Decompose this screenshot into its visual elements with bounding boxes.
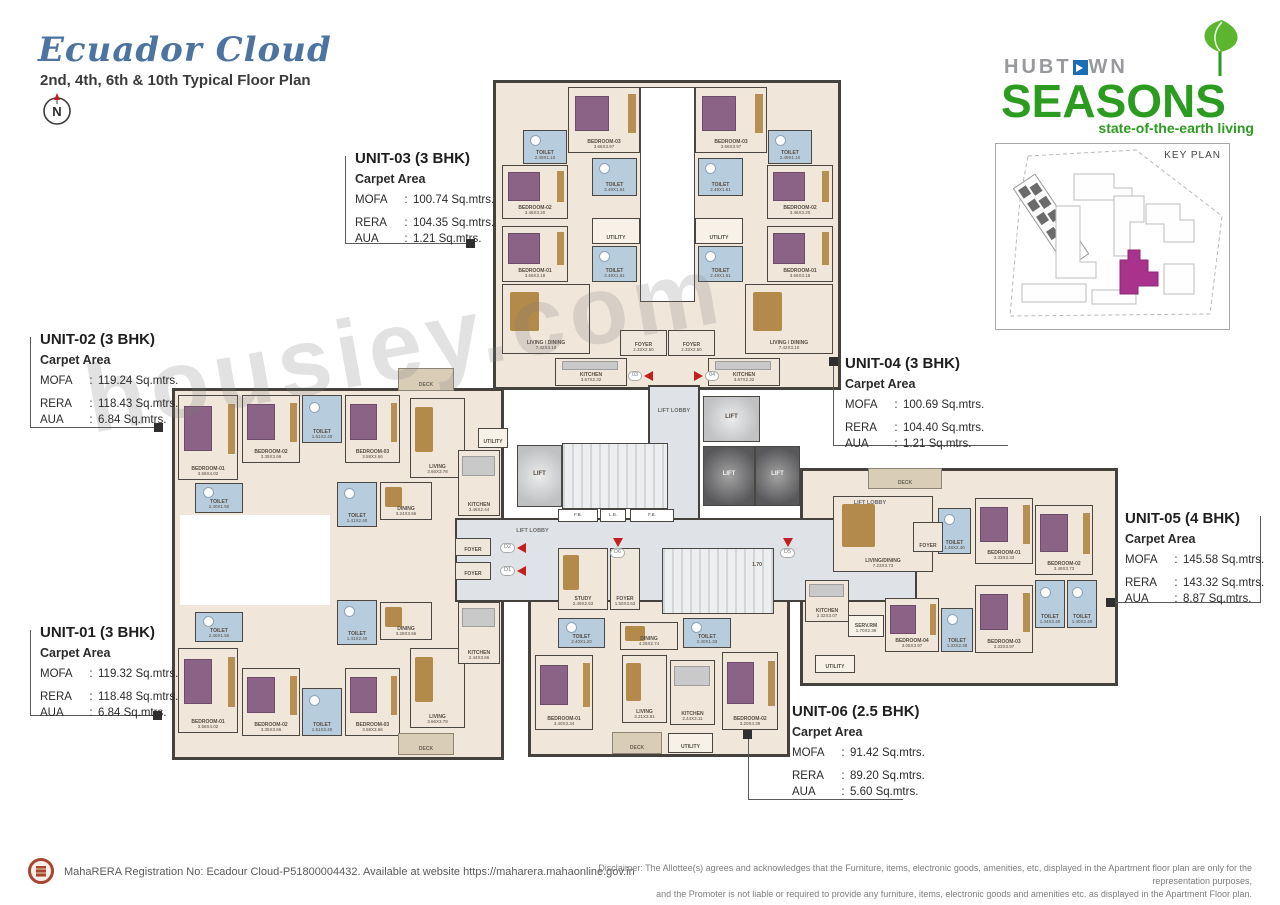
unit-04-carpet-area-heading: Carpet Area: [845, 377, 984, 391]
area-key: RERA: [40, 396, 84, 413]
room-dimensions: 2.49X1.61: [604, 274, 625, 279]
door-arrow-icon: [783, 538, 793, 547]
colon: :: [84, 689, 98, 706]
room-toilet: TOILET1.41X2.40: [337, 600, 377, 645]
unit-06-rera-row: RERA:89.20 Sq.mtrs.: [792, 768, 925, 785]
room-dining: DINING4.25X2.74: [620, 622, 678, 650]
colon: :: [84, 412, 98, 429]
door-marker-03: 03: [628, 371, 653, 381]
room-bedroom-02: BEDROOM-023.46X3.20: [767, 165, 833, 219]
area-key: RERA: [1125, 575, 1169, 592]
unit-06-carpet-area-heading: Carpet Area: [792, 725, 925, 739]
room-dimensions: 4.25X2.74: [639, 642, 660, 647]
room-shaft: [640, 87, 695, 302]
room-dimensions: 1.51X2.40: [312, 728, 333, 733]
room-label: LIFT LOBBY: [658, 408, 690, 415]
room-living: LIVING3.66X3.78: [410, 648, 465, 728]
room-bedroom-02: BEDROOM-023.20X4.39: [722, 652, 778, 730]
door-label: D6: [610, 548, 625, 558]
room-label: F.B.: [648, 512, 656, 517]
colon: :: [889, 420, 903, 437]
room-foyer: FOYER2.32X2.50: [620, 330, 667, 356]
room-dimensions: 3.33X3.33: [994, 556, 1015, 561]
room-living-dining: LIVING / DINING7.42X3.10: [502, 284, 590, 354]
door-label: D1: [500, 566, 515, 576]
area-value: 91.42 Sq.mtrs.: [850, 745, 925, 762]
room-dimensions: 2.49X2.63: [573, 602, 594, 607]
area-key: RERA: [355, 215, 399, 232]
area-key: MOFA: [355, 192, 399, 209]
room-label: UTILITY: [826, 664, 845, 670]
area-key: MOFA: [40, 666, 84, 683]
door-marker-d6: D6: [610, 538, 625, 558]
unit-05-name: UNIT-05 (4 BHK): [1125, 510, 1264, 527]
area-value: 119.24 Sq.mtrs.: [98, 373, 178, 390]
room-f-b-: F.B.: [558, 509, 598, 522]
door-label: 03: [628, 371, 642, 381]
room-dimensions: 2.40X1.50: [209, 505, 230, 510]
room-dimensions: 2.40X1.50: [209, 634, 230, 639]
room-label: F.B.: [574, 512, 582, 517]
room-toilet: TOILET2.40X1.50: [195, 612, 243, 642]
room-deck: DECK: [868, 468, 942, 489]
room-dimensions: 7.42X3.10: [779, 346, 800, 351]
room-label: DECK: [419, 746, 433, 752]
door-marker-d1: D1: [500, 566, 526, 576]
unit-02-name: UNIT-02 (3 BHK): [40, 331, 178, 348]
door-label: 04: [705, 371, 719, 381]
unit-06-name: UNIT-06 (2.5 BHK): [792, 703, 925, 720]
door-marker-04: 04: [694, 371, 719, 381]
floor-plan: BEDROOM-033.66X3.97TOILET2.49X1.10BEDROO…: [0, 0, 1280, 905]
door-arrow-icon: [517, 543, 526, 553]
unit-06-label-box: UNIT-06 (2.5 BHK)Carpet AreaMOFA:91.42 S…: [792, 703, 925, 801]
plan-cut: [180, 515, 330, 605]
unit-02-rera-row: RERA:118.43 Sq.mtrs.: [40, 396, 178, 413]
room-dimensions: 3.21X3.81: [634, 715, 655, 720]
room-dimensions: 3.35X3.66: [261, 728, 282, 733]
room-dimensions: 2.44X3.11: [682, 717, 702, 722]
room-dimensions: 3.66X3.97: [721, 145, 742, 150]
room-dining: DINING3.24X3.66: [380, 482, 432, 520]
room-bedroom-03: BEDROOM-033.66X3.97: [568, 87, 640, 153]
room-living: LIVING3.21X3.81: [622, 655, 667, 723]
room-toilet: TOILET1.51X2.40: [302, 395, 342, 443]
room-utility: UTILITY: [668, 733, 713, 753]
area-value: 1.21 Sq.mtrs.: [413, 231, 481, 248]
room-dimensions: 3.46X3.20: [790, 211, 811, 216]
unit-06-aua-row: AUA:5.60 Sq.mtrs.: [792, 784, 925, 801]
room-dimensions: 3.67X2.32: [581, 378, 602, 383]
room-utility: UTILITY: [592, 218, 640, 244]
room-dimensions: 7.23X3.73: [873, 564, 894, 569]
room-toilet: TOILET1.33X2.38: [941, 608, 973, 652]
unit-03-mofa-row: MOFA:100.74 Sq.mtrs.: [355, 192, 494, 209]
room-foyer: FOYER: [913, 522, 943, 552]
unit-03-leader-line: [345, 156, 346, 244]
door-arrow-icon: [644, 371, 653, 381]
colon: :: [1169, 591, 1183, 608]
room-dimensions: 3.46X3.20: [525, 211, 546, 216]
maharera-seal-icon: [28, 858, 54, 884]
room-dimensions: 3.58X3.66: [362, 455, 383, 460]
room-dimensions: 3.67X2.32: [734, 378, 755, 383]
room-bedroom-01: BEDROOM-013.40X3.34: [535, 655, 593, 730]
room-lift: LIFT: [755, 446, 800, 506]
room-label: LIFT LOBBY: [516, 528, 548, 535]
area-value: 104.35 Sq.mtrs.: [413, 215, 494, 232]
room-label: L.B.: [609, 512, 617, 517]
room-study: STUDY2.49X2.63: [558, 548, 608, 610]
unit-01-rera-row: RERA:118.48 Sq.mtrs.: [40, 689, 178, 706]
room-dimensions: 2.49X1.61: [604, 188, 625, 193]
room-dimensions: 3.58X3.66: [362, 728, 383, 733]
unit-01-name: UNIT-01 (3 BHK): [40, 624, 178, 641]
area-value: 5.60 Sq.mtrs.: [850, 784, 918, 801]
area-value: 145.58 Sq.mtrs.: [1183, 552, 1264, 569]
area-key: MOFA: [792, 745, 836, 762]
room-dimensions: 2.49X1.61: [710, 188, 731, 193]
colon: :: [84, 373, 98, 390]
unit-02-leader-line: [30, 337, 31, 428]
room-dimensions: 2.40X1.20: [571, 640, 592, 645]
door-label: D2: [500, 543, 515, 553]
room-dimensions: 1.70X2.39: [856, 629, 877, 634]
area-value: 100.74 Sq.mtrs.: [413, 192, 494, 209]
room-dimensions: 3.66X3.18: [790, 274, 811, 279]
area-value: 104.40 Sq.mtrs.: [903, 420, 984, 437]
room-dimensions: 1.40X2.40: [1072, 620, 1093, 625]
colon: :: [889, 436, 903, 453]
room-lift-lobby: LIFT LOBBY: [505, 526, 560, 538]
room-stair: [662, 548, 774, 614]
room-label: UTILITY: [710, 235, 729, 241]
room-label: UTILITY: [681, 744, 700, 750]
room-living: LIVING3.66X3.78: [410, 398, 465, 478]
unit-02-mofa-row: MOFA:119.24 Sq.mtrs.: [40, 373, 178, 390]
door-marker-d5: D5: [780, 538, 795, 558]
room-label: DECK: [419, 382, 433, 388]
area-key: AUA: [1125, 591, 1169, 608]
colon: :: [836, 768, 850, 785]
room-dimensions: 2.49X1.61: [710, 274, 731, 279]
area-value: 119.32 Sq.mtrs.: [98, 666, 178, 683]
unit-03-name: UNIT-03 (3 BHK): [355, 150, 494, 167]
room-label: FOYER: [919, 543, 936, 549]
room-foyer: FOYER: [455, 562, 491, 580]
room-toilet: TOILET1.41X2.40: [337, 482, 377, 527]
unit-01-label-box: UNIT-01 (3 BHK)Carpet AreaMOFA:119.32 Sq…: [40, 624, 178, 722]
room-foyer: FOYER2.32X2.50: [668, 330, 715, 356]
unit-03-aua-row: AUA:1.21 Sq.mtrs.: [355, 231, 494, 248]
room-kitchen: KITCHEN3.67X2.32: [555, 358, 627, 386]
unit-05-leader-marker: [1106, 598, 1115, 607]
room-dimensions: 1.51X2.40: [312, 435, 333, 440]
room-toilet: TOILET2.40X1.33: [683, 618, 731, 648]
room-lift-lobby: LIFT LOBBY: [840, 498, 900, 510]
room-dimensions: 3.66X3.78: [427, 720, 448, 725]
area-key: MOFA: [40, 373, 84, 390]
room-bedroom-02: BEDROOM-023.35X3.66: [242, 395, 300, 463]
disclaimer-line-1: Disclaimer: The Allottee(s) agrees and a…: [598, 863, 1252, 886]
area-key: AUA: [355, 231, 399, 248]
room-toilet: TOILET1.44X2.40: [1035, 580, 1065, 628]
colon: :: [84, 396, 98, 413]
room-dimensions: 3.46X2.44: [469, 508, 490, 513]
rera-registration-text: MahaRERA Registration No: Ecadour Cloud-…: [64, 866, 635, 878]
room-toilet: TOILET1.51X2.40: [302, 688, 342, 736]
room-kitchen: KITCHEN3.46X2.44: [458, 450, 500, 516]
door-marker-d2: D2: [500, 543, 526, 553]
area-value: 89.20 Sq.mtrs.: [850, 768, 925, 785]
room-f-b-: F.B.: [630, 509, 674, 522]
room-dimensions: 1.50X3.63: [615, 602, 636, 607]
disclaimer-line-2: and the Promoter is not liable or requir…: [656, 889, 1252, 899]
room-dimensions: 1.41X2.40: [347, 519, 368, 524]
door-label: D5: [780, 548, 795, 558]
room-utility: UTILITY: [695, 218, 743, 244]
unit-04-name: UNIT-04 (3 BHK): [845, 355, 984, 372]
room-dimensions: 7.42X3.10: [536, 346, 557, 351]
room-dimensions: 3.33X3.97: [994, 645, 1015, 650]
room-dimensions: 2.49X1.10: [535, 156, 556, 161]
room-toilet: TOILET2.40X1.20: [558, 618, 605, 648]
room-toilet: TOILET2.49X1.61: [592, 158, 637, 196]
colon: :: [399, 192, 413, 209]
room-label: LIFT: [725, 414, 738, 421]
area-key: AUA: [845, 436, 889, 453]
unit-04-mofa-row: MOFA:100.69 Sq.mtrs.: [845, 397, 984, 414]
room-dimensions: 3.66X3.97: [594, 145, 615, 150]
room-toilet: TOILET2.49X1.10: [768, 130, 812, 164]
room-deck: DECK: [612, 732, 662, 754]
room-dimensions: 1.33X2.38: [947, 644, 968, 649]
unit-03-carpet-area-heading: Carpet Area: [355, 172, 494, 186]
door-arrow-icon: [694, 371, 703, 381]
room-toilet: TOILET2.49X1.61: [698, 246, 743, 282]
room-deck: DECK: [398, 733, 454, 755]
room-dimensions: 3.20X4.39: [740, 722, 761, 727]
unit-04-label-box: UNIT-04 (3 BHK)Carpet AreaMOFA:100.69 Sq…: [845, 355, 984, 453]
room-label: LIFT: [771, 471, 784, 478]
room-label: UTILITY: [484, 439, 503, 445]
unit-02-label-box: UNIT-02 (3 BHK)Carpet AreaMOFA:119.24 Sq…: [40, 331, 178, 429]
area-key: AUA: [792, 784, 836, 801]
room-kitchen: KITCHEN2.44X3.11: [670, 660, 715, 725]
unit-05-rera-row: RERA:143.32 Sq.mtrs.: [1125, 575, 1264, 592]
room-dimensions: 3.35X3.66: [261, 455, 282, 460]
room-kitchen: KITCHEN2.32X3.07: [805, 580, 849, 622]
room-bedroom-03: BEDROOM-033.33X3.97: [975, 585, 1033, 653]
room-label: LIFT: [723, 471, 736, 478]
unit-05-label-box: UNIT-05 (4 BHK)Carpet AreaMOFA:145.58 Sq…: [1125, 510, 1264, 608]
colon: :: [399, 215, 413, 232]
room-lift: LIFT: [517, 445, 562, 507]
room-bedroom-02: BEDROOM-023.35X3.66: [242, 668, 300, 736]
room-lift-lobby: LIFT LOBBY: [648, 405, 700, 419]
area-key: AUA: [40, 705, 84, 722]
unit-06-leader-marker: [743, 730, 752, 739]
room-dimensions: 2.32X3.07: [817, 614, 838, 619]
room-utility: UTILITY: [815, 655, 855, 673]
room-dimensions: 3.66X3.78: [427, 470, 448, 475]
room-dimensions: 3.58X4.02: [198, 472, 219, 477]
room-label: DECK: [630, 745, 644, 751]
room-toilet: TOILET2.49X1.61: [592, 246, 637, 282]
area-key: RERA: [792, 768, 836, 785]
unit-01-leader-line: [30, 630, 31, 716]
colon: :: [889, 397, 903, 414]
area-value: 100.69 Sq.mtrs.: [903, 397, 984, 414]
unit-04-leader-marker: [829, 357, 838, 366]
room-lift: LIFT: [703, 396, 760, 442]
colon: :: [836, 784, 850, 801]
unit-01-carpet-area-heading: Carpet Area: [40, 646, 178, 660]
room-bedroom-03: BEDROOM-033.66X3.97: [695, 87, 767, 153]
room-label: DECK: [898, 480, 912, 486]
room-dimensions: 3.05X3.97: [902, 644, 923, 649]
colon: :: [84, 666, 98, 683]
room-label: LIFT: [533, 471, 546, 478]
door-arrow-icon: [613, 538, 623, 547]
room-stair: [562, 443, 668, 509]
room-dimensions: 1.41X2.40: [347, 637, 368, 642]
area-value: 143.32 Sq.mtrs.: [1183, 575, 1264, 592]
room-label: UTILITY: [607, 235, 626, 241]
room-label: LIFT LOBBY: [854, 500, 886, 507]
room-bedroom-01: BEDROOM-013.66X3.18: [502, 226, 568, 282]
room-dimensions: 2.40X1.33: [697, 640, 718, 645]
area-key: MOFA: [845, 397, 889, 414]
room-bedroom-01: BEDROOM-013.58X4.02: [178, 395, 238, 480]
colon: :: [399, 231, 413, 248]
unit-05-carpet-area-heading: Carpet Area: [1125, 532, 1264, 546]
area-key: RERA: [40, 689, 84, 706]
room-serv-rm: SERV.RM1.70X2.39: [848, 615, 884, 637]
room-dimensions: 3.40X3.34: [554, 722, 575, 727]
room-dimensions: 3.66X3.18: [525, 274, 546, 279]
room-dimensions: 2.44X3.66: [469, 656, 490, 661]
unit-05-aua-row: AUA:8.87 Sq.mtrs.: [1125, 591, 1264, 608]
room-kitchen: KITCHEN2.44X3.66: [458, 602, 500, 664]
unit-01-mofa-row: MOFA:119.32 Sq.mtrs.: [40, 666, 178, 683]
area-value: 6.84 Sq.mtrs.: [98, 412, 166, 429]
room-dimensions: 3.24X3.66: [396, 512, 417, 517]
room-toilet: TOILET1.40X2.40: [1067, 580, 1097, 628]
unit-04-rera-row: RERA:104.40 Sq.mtrs.: [845, 420, 984, 437]
room-utility: UTILITY: [478, 428, 508, 448]
room-bedroom-01: BEDROOM-013.66X3.18: [767, 226, 833, 282]
room-dining: DINING3.28X3.66: [380, 602, 432, 640]
unit-01-aua-row: AUA:6.84 Sq.mtrs.: [40, 705, 178, 722]
area-key: MOFA: [1125, 552, 1169, 569]
room-bedroom-02: BEDROOM-023.48X3.73: [1035, 505, 1093, 575]
room-living-dining: LIVING / DINING7.42X3.10: [745, 284, 833, 354]
unit-03-label-box: UNIT-03 (3 BHK)Carpet AreaMOFA:100.74 Sq…: [355, 150, 494, 248]
room-toilet: TOILET2.40X1.50: [195, 483, 243, 513]
colon: :: [1169, 552, 1183, 569]
room-bedroom-04: BEDROOM-043.05X3.97: [885, 598, 939, 652]
room-toilet: TOILET2.49X1.61: [698, 158, 743, 196]
door-arrow-icon: [517, 566, 526, 576]
room-deck: DECK: [398, 368, 454, 391]
room-label: FOYER: [464, 547, 481, 553]
room-toilet: TOILET2.49X1.10: [523, 130, 567, 164]
room-label: 1.70: [752, 562, 762, 568]
room-bedroom-03: BEDROOM-033.58X3.66: [345, 395, 400, 463]
area-value: 8.87 Sq.mtrs.: [1183, 591, 1251, 608]
area-value: 6.84 Sq.mtrs.: [98, 705, 166, 722]
room-lift: LIFT: [703, 446, 755, 506]
room-dimensions: 3.58X4.02: [198, 725, 219, 730]
unit-06-leader-line: [748, 737, 749, 800]
room-foyer: FOYER: [455, 538, 491, 556]
unit-02-aua-row: AUA:6.84 Sq.mtrs.: [40, 412, 178, 429]
room-label: FOYER: [464, 571, 481, 577]
room-bedroom-03: BEDROOM-033.58X3.66: [345, 668, 400, 736]
room-dimensions: 3.48X3.73: [1054, 567, 1075, 572]
disclaimer-text: Disclaimer: The Allottee(s) agrees and a…: [562, 862, 1252, 901]
area-key: AUA: [40, 412, 84, 429]
room-bedroom-01: BEDROOM-013.58X4.02: [178, 648, 238, 733]
unit-02-carpet-area-heading: Carpet Area: [40, 353, 178, 367]
area-key: RERA: [845, 420, 889, 437]
room-dimensions: 2.32X2.50: [681, 348, 702, 353]
colon: :: [836, 745, 850, 762]
room-dimensions: 2.32X2.50: [633, 348, 654, 353]
room-l-b-: L.B.: [600, 509, 626, 522]
area-value: 118.48 Sq.mtrs.: [98, 689, 178, 706]
unit-03-rera-row: RERA:104.35 Sq.mtrs.: [355, 215, 494, 232]
colon: :: [84, 705, 98, 722]
room-dimensions: 1.44X2.40: [1040, 620, 1061, 625]
room-bedroom-02: BEDROOM-023.46X3.20: [502, 165, 568, 219]
room-dimensions: 1.48X2.40: [944, 546, 965, 551]
room-dimensions: 2.49X1.10: [780, 156, 801, 161]
unit-04-leader-line: [833, 362, 834, 446]
unit-04-aua-row: AUA:1.21 Sq.mtrs.: [845, 436, 984, 453]
colon: :: [1169, 575, 1183, 592]
room-dimensions: 3.28X3.66: [396, 632, 417, 637]
area-value: 118.43 Sq.mtrs.: [98, 396, 178, 413]
area-value: 1.21 Sq.mtrs.: [903, 436, 971, 453]
unit-06-mofa-row: MOFA:91.42 Sq.mtrs.: [792, 745, 925, 762]
room-bedroom-01: BEDROOM-013.33X3.33: [975, 498, 1033, 564]
unit-05-mofa-row: MOFA:145.58 Sq.mtrs.: [1125, 552, 1264, 569]
